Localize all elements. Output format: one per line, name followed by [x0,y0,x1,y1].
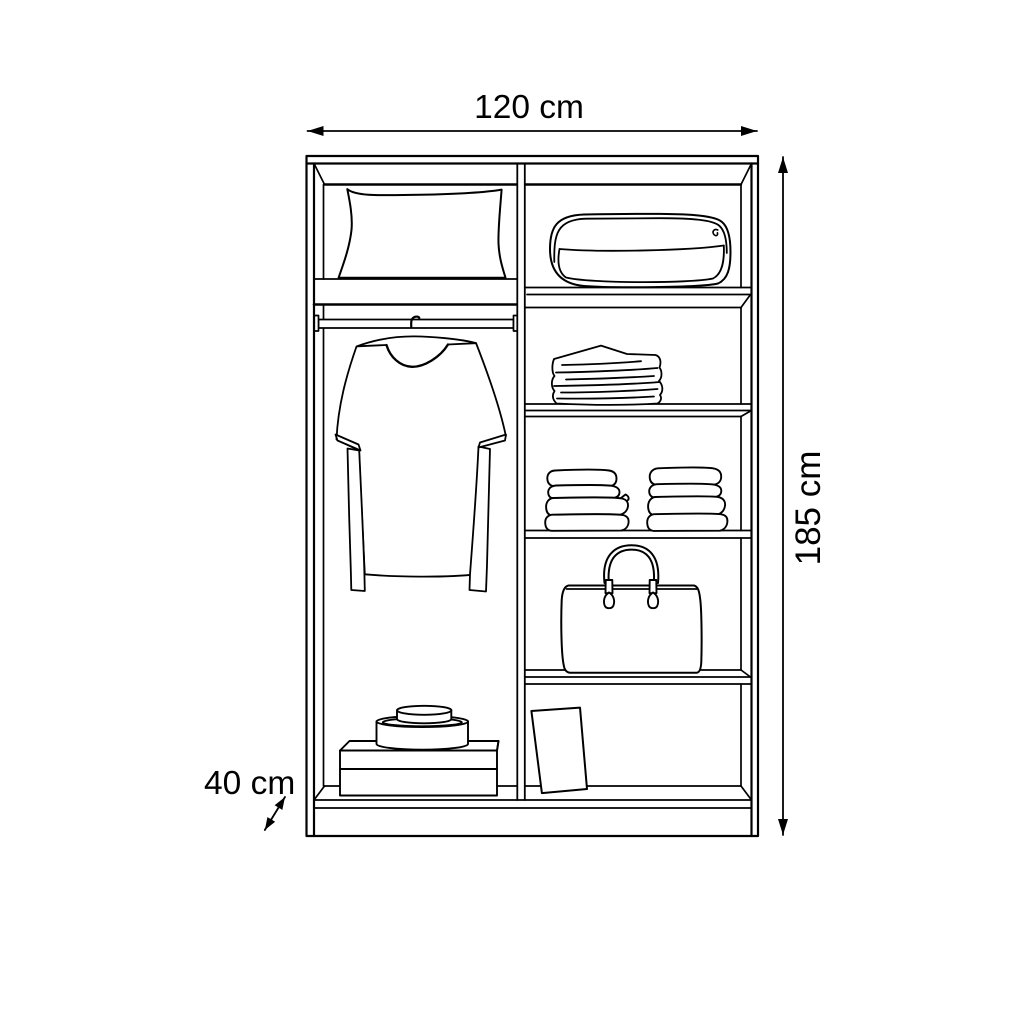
svg-text:40 cm: 40 cm [204,765,295,802]
svg-text:120 cm: 120 cm [474,89,584,126]
svg-text:185 cm: 185 cm [789,451,828,566]
